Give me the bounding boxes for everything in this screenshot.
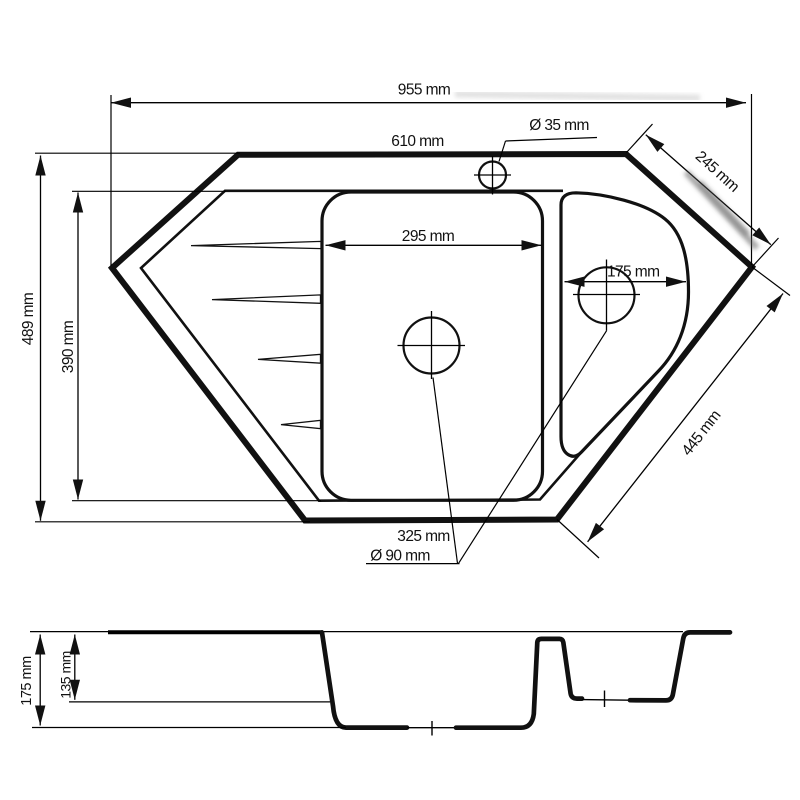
svg-text:295 mm: 295 mm <box>402 228 454 245</box>
svg-text:325 mm: 325 mm <box>397 528 449 545</box>
svg-text:390 mm: 390 mm <box>60 321 77 373</box>
svg-text:489 mm: 489 mm <box>20 293 37 345</box>
svg-text:955 mm: 955 mm <box>398 82 450 99</box>
svg-text:Ø 90 mm: Ø 90 mm <box>370 548 430 565</box>
svg-text:610 mm: 610 mm <box>391 133 443 150</box>
svg-text:Ø 35 mm: Ø 35 mm <box>529 117 589 134</box>
svg-text:135 mm: 135 mm <box>58 651 74 699</box>
svg-text:175 mm: 175 mm <box>19 656 35 706</box>
svg-text:175 mm: 175 mm <box>607 264 659 281</box>
